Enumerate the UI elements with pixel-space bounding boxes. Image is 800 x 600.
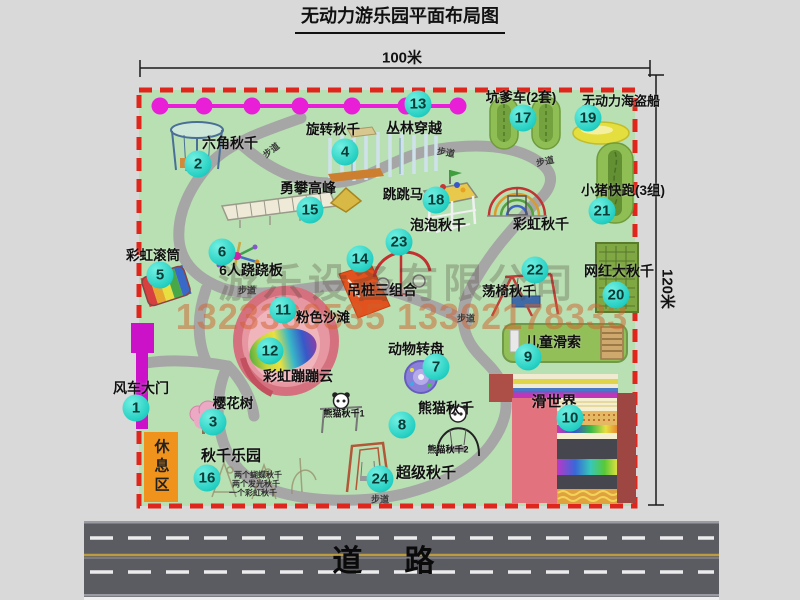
marker-badge-1: 1: [123, 395, 150, 422]
marker-badge-14: 14: [347, 246, 374, 273]
page-title: 无动力游乐园平面布局图: [295, 2, 505, 34]
attraction-label-x26: 熊猫秋千2: [427, 443, 468, 456]
marker-badge-13: 13: [405, 91, 432, 118]
attraction-label-8: 熊猫秋千: [418, 398, 474, 418]
park-layout-poster: 游乐设备有限公司 1323380535 13302178333 无动力游乐园平面…: [0, 0, 800, 600]
attraction-label-17: 坑爹车(2套): [486, 86, 557, 106]
road-label: 道路: [332, 536, 476, 580]
attraction-label-4: 旋转秋千: [306, 118, 360, 138]
marker-badge-11: 11: [270, 297, 297, 324]
marker-badge-21: 21: [589, 198, 616, 225]
marker-badge-24: 24: [367, 466, 394, 493]
marker-badge-8: 8: [389, 412, 416, 439]
attraction-label-22: 荡椅秋千: [482, 280, 536, 300]
height-dimension-label: 120米: [658, 269, 679, 309]
attraction-label-x25: 熊猫秋千1: [323, 407, 364, 420]
marker-badge-20: 20: [603, 282, 630, 309]
attraction-label-12: 彩虹蹦蹦云: [263, 366, 333, 386]
marker-badge-19: 19: [575, 105, 602, 132]
attraction-label-24: 超级秋千: [396, 462, 456, 483]
marker-badge-7: 7: [423, 354, 450, 381]
marker-badge-2: 2: [185, 151, 212, 178]
attraction-label-23: 泡泡秋千: [410, 215, 466, 235]
marker-badge-10: 10: [557, 405, 584, 432]
marker-badge-3: 3: [200, 409, 227, 436]
attraction-label-14: 吊桩三组合: [347, 280, 417, 300]
attraction-label-x24: 彩虹秋千: [513, 214, 569, 234]
marker-badge-12: 12: [257, 338, 284, 365]
attraction-label-5: 彩虹滚筒: [126, 244, 180, 264]
marker-badge-16: 16: [194, 465, 221, 492]
walkway-label: 步道: [457, 312, 475, 325]
marker-badge-23: 23: [386, 229, 413, 256]
attraction-label-13: 丛林穿越: [386, 118, 442, 138]
attraction-label-11: 粉色沙滩: [296, 306, 350, 326]
attraction-label-21: 小猪快跑(3组): [581, 179, 665, 199]
rest-area-label: 休息区: [151, 439, 172, 496]
marker-badge-9: 9: [515, 344, 542, 371]
swing-park-note: 一个彩虹秋千: [229, 488, 277, 499]
marker-badge-22: 22: [522, 257, 549, 284]
width-dimension-label: 100米: [382, 47, 422, 68]
marker-badge-5: 5: [147, 262, 174, 289]
attraction-label-15: 勇攀高峰: [280, 178, 336, 198]
marker-badge-17: 17: [510, 105, 537, 132]
marker-badge-15: 15: [297, 197, 324, 224]
marker-badge-6: 6: [209, 239, 236, 266]
marker-badge-18: 18: [423, 187, 450, 214]
walkway-label: 步道: [371, 493, 389, 506]
attraction-label-20: 网红大秋千: [584, 261, 654, 281]
attraction-label-18: 跳跳马: [383, 183, 424, 203]
walkway-label: 步道: [238, 284, 256, 297]
attraction-label-16: 秋千乐园: [201, 445, 261, 466]
attraction-label-2: 六角秋千: [202, 133, 258, 153]
marker-badge-4: 4: [332, 139, 359, 166]
